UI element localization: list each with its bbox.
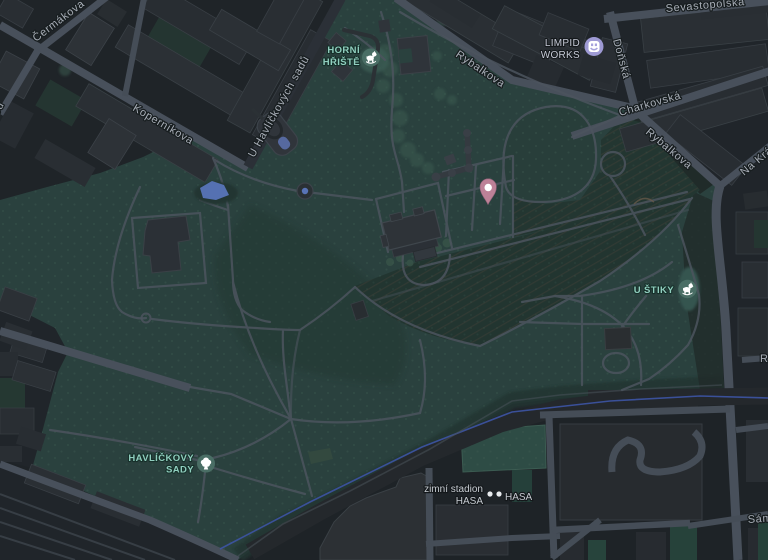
svg-text:HORNÍ: HORNÍ <box>327 45 360 56</box>
svg-text:HASA: HASA <box>456 496 484 507</box>
svg-text:LIMPID: LIMPID <box>545 38 580 49</box>
svg-text:WORKS: WORKS <box>541 50 580 61</box>
svg-text:SADY: SADY <box>166 465 194 476</box>
svg-text:HAVLÍČKOVY: HAVLÍČKOVY <box>128 452 194 464</box>
svg-text:HASA: HASA <box>505 492 533 503</box>
svg-text:U ŠTIKY: U ŠTIKY <box>634 284 675 296</box>
svg-text:Sám: Sám <box>747 512 768 526</box>
svg-text:zimní stadion: zimní stadion <box>424 484 483 495</box>
svg-text:HŘIŠTĚ: HŘIŠTĚ <box>323 56 360 68</box>
svg-text:Ru: Ru <box>760 353 768 365</box>
